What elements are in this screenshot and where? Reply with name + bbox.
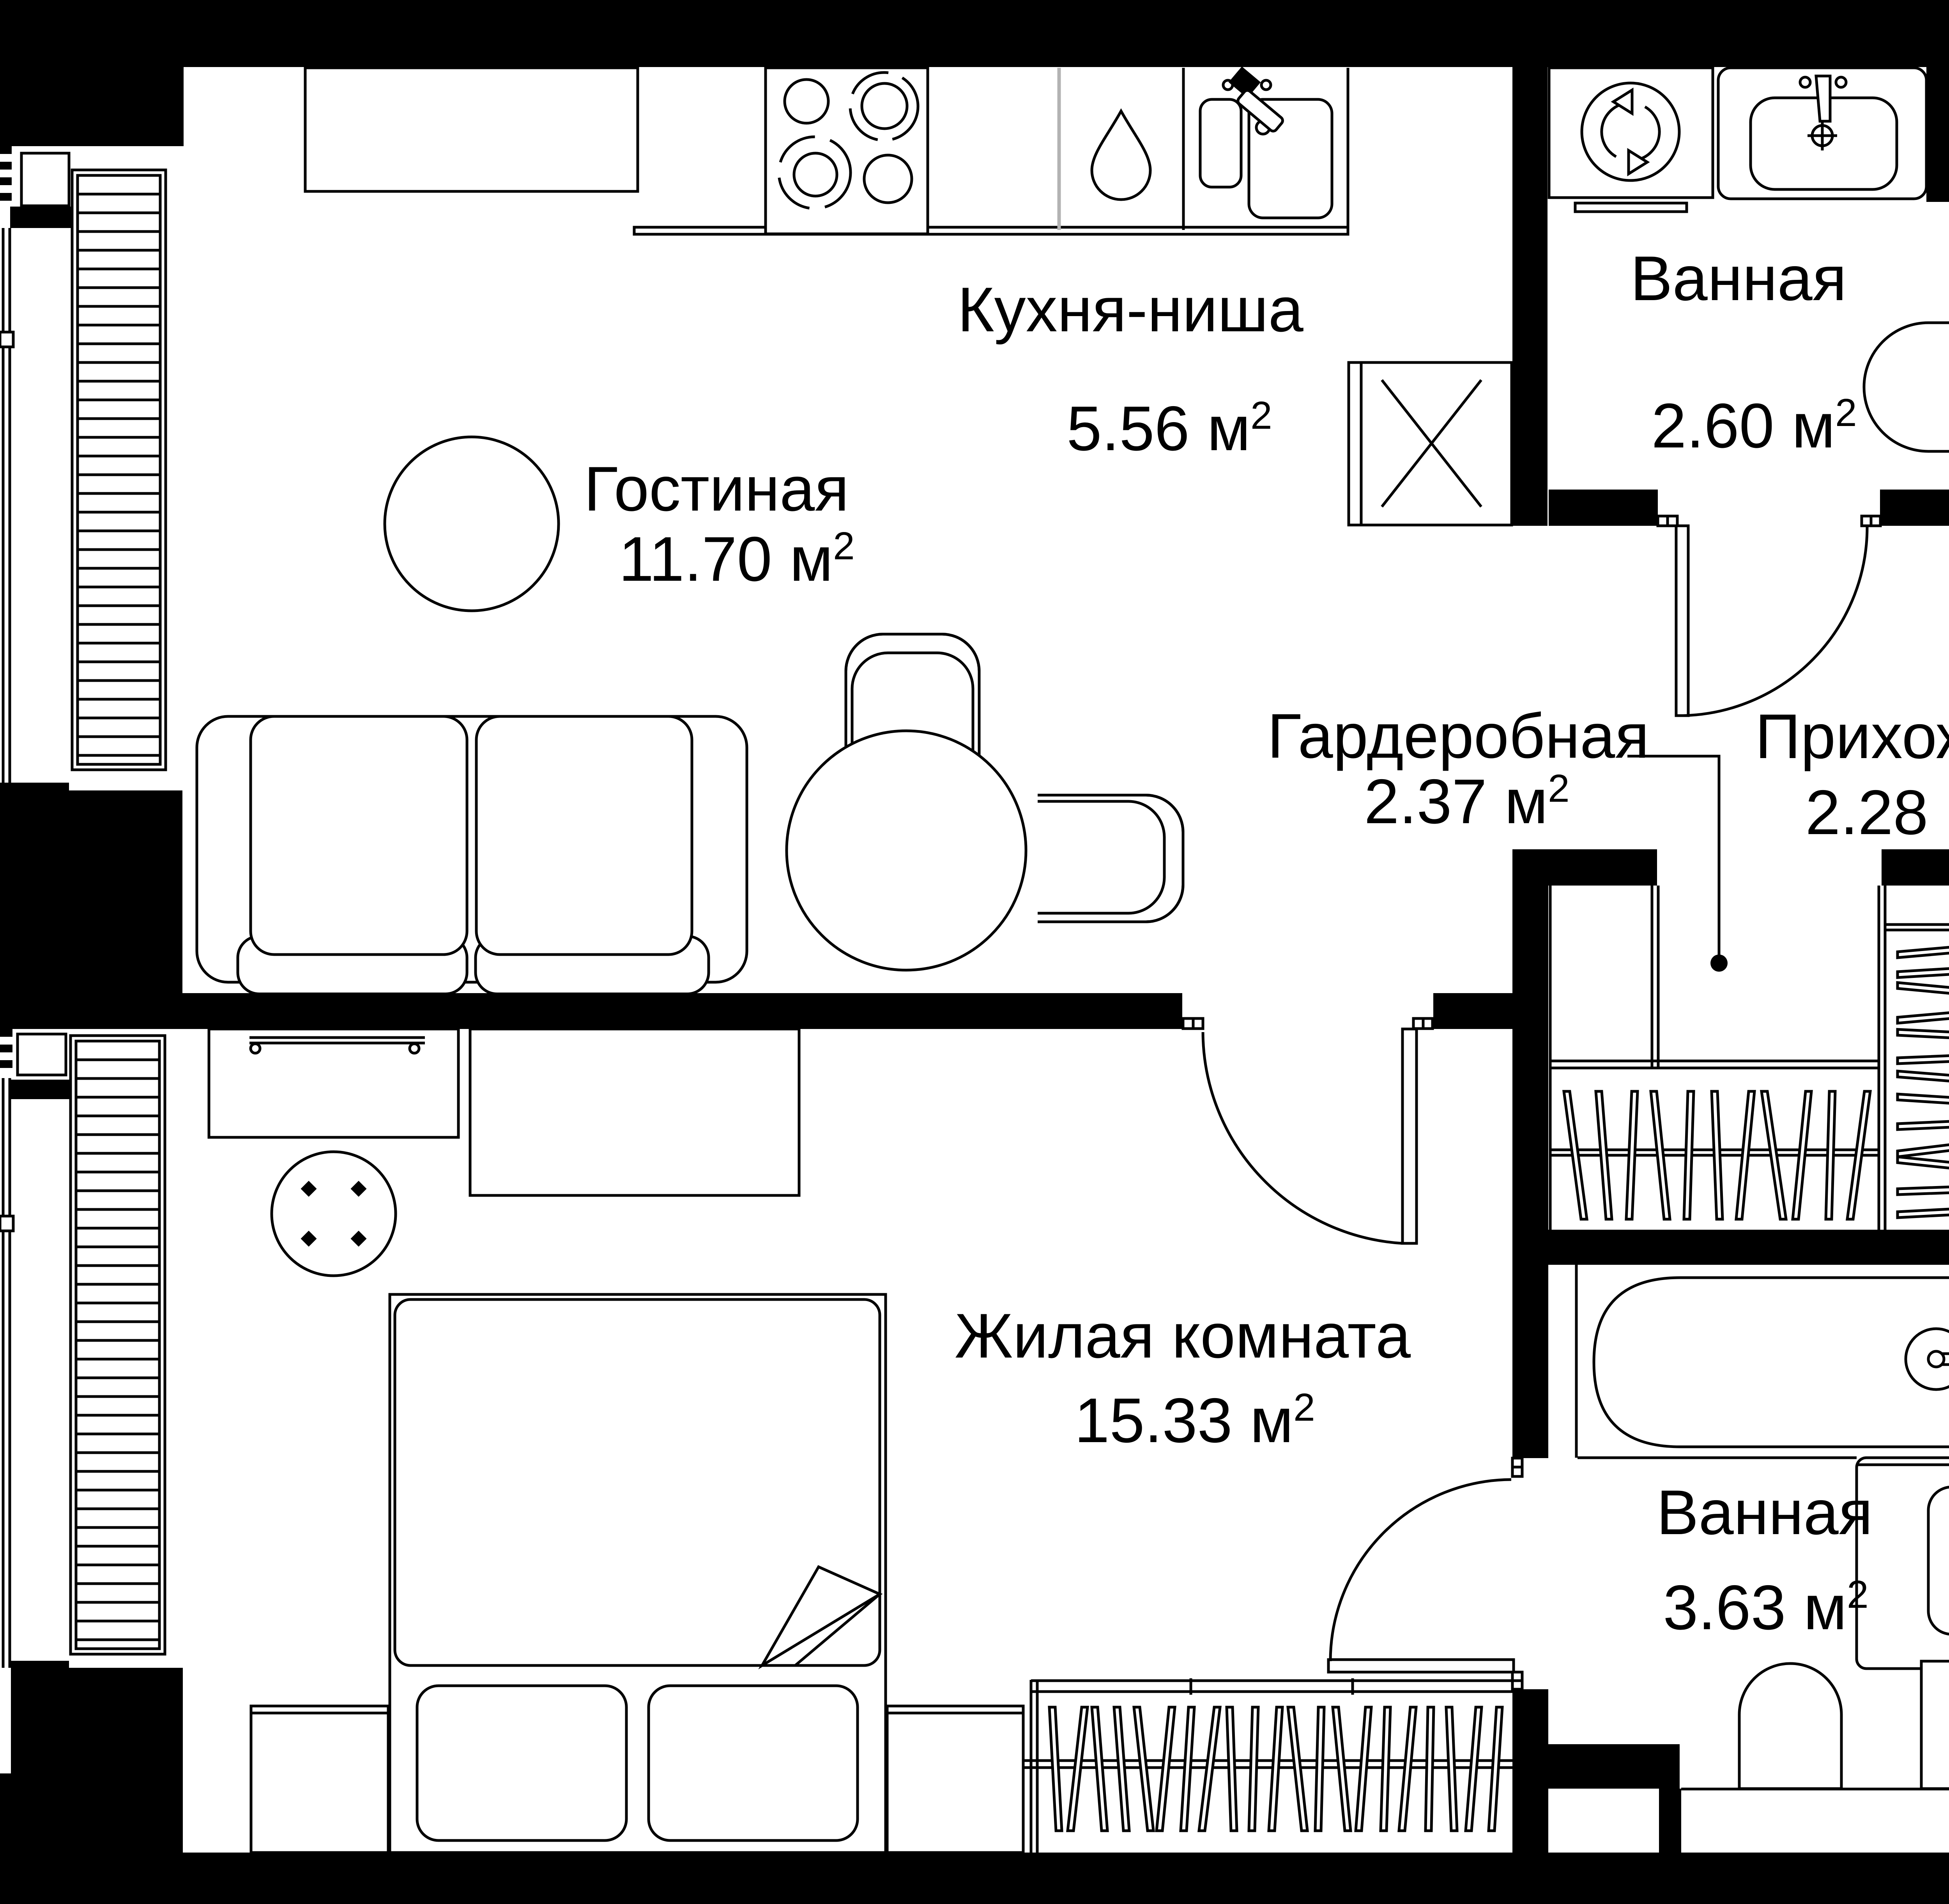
svg-text:3.63 м2: 3.63 м2 xyxy=(1663,1572,1868,1643)
svg-text:2.37 м2: 2.37 м2 xyxy=(1364,766,1569,837)
svg-text:Гардеробная: Гардеробная xyxy=(1267,701,1649,771)
svg-text:Гостиная: Гостиная xyxy=(584,454,849,524)
svg-text:5.56 м2: 5.56 м2 xyxy=(1066,393,1272,464)
svg-text:Ванная: Ванная xyxy=(1631,243,1847,314)
svg-text:Ванная: Ванная xyxy=(1657,1477,1873,1548)
svg-text:Жилая комната: Жилая комната xyxy=(955,1301,1411,1371)
svg-text:Кухня-ниша: Кухня-ниша xyxy=(957,274,1303,345)
svg-text:2.28 м2: 2.28 м2 xyxy=(1805,777,1949,848)
svg-text:2.60 м2: 2.60 м2 xyxy=(1651,391,1857,461)
svg-text:15.33 м2: 15.33 м2 xyxy=(1074,1385,1315,1456)
svg-text:Прихожая: Прихожая xyxy=(1755,701,1949,772)
svg-text:11.70 м2: 11.70 м2 xyxy=(619,524,854,594)
